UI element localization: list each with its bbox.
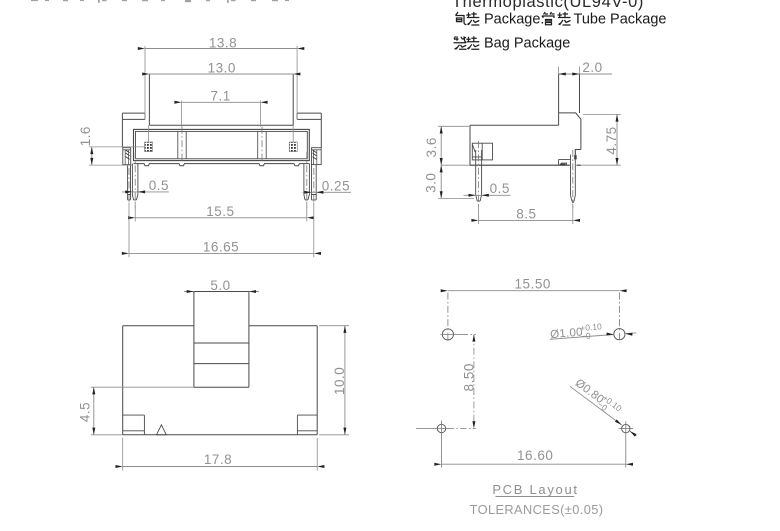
svg-text:PCB Layout: PCB Layout — [492, 482, 578, 497]
svg-text:1.6: 1.6 — [78, 126, 93, 146]
svg-text:2.0: 2.0 — [582, 60, 602, 75]
svg-text:3.6: 3.6 — [424, 137, 439, 157]
svg-text:8.5: 8.5 — [516, 206, 536, 221]
svg-text:4.5: 4.5 — [78, 402, 93, 422]
svg-text:Bag Package: Bag Package — [484, 36, 570, 52]
svg-text:5.0: 5.0 — [210, 278, 230, 293]
svg-text:0.5: 0.5 — [490, 181, 510, 196]
svg-text:Ø1.00: Ø1.00 — [550, 326, 584, 342]
svg-text:17.8: 17.8 — [204, 452, 232, 467]
svg-text:7.1: 7.1 — [211, 88, 231, 103]
svg-text:8.50: 8.50 — [461, 363, 476, 391]
svg-text:4.75: 4.75 — [604, 126, 619, 154]
svg-text:TOLERANCES(±0.05): TOLERANCES(±0.05) — [470, 502, 604, 517]
svg-text:Package:: Package: — [484, 12, 544, 28]
svg-text:0.5: 0.5 — [149, 178, 169, 193]
svg-text:16.65: 16.65 — [203, 240, 239, 255]
svg-text:3.0: 3.0 — [424, 173, 439, 193]
svg-text:13.0: 13.0 — [208, 60, 236, 75]
svg-text:0.25: 0.25 — [322, 179, 350, 194]
svg-text:Tube Package: Tube Package — [574, 12, 667, 28]
svg-text:15.5: 15.5 — [206, 204, 234, 219]
svg-text:−0: −0 — [581, 330, 592, 341]
svg-text:16.60: 16.60 — [517, 448, 553, 463]
svg-text:13.8: 13.8 — [209, 35, 237, 50]
svg-text:Thermoplastic(UL94V-0): Thermoplastic(UL94V-0) — [452, 0, 644, 11]
svg-text:15.50: 15.50 — [515, 277, 551, 292]
svg-text:10.0: 10.0 — [332, 367, 347, 395]
